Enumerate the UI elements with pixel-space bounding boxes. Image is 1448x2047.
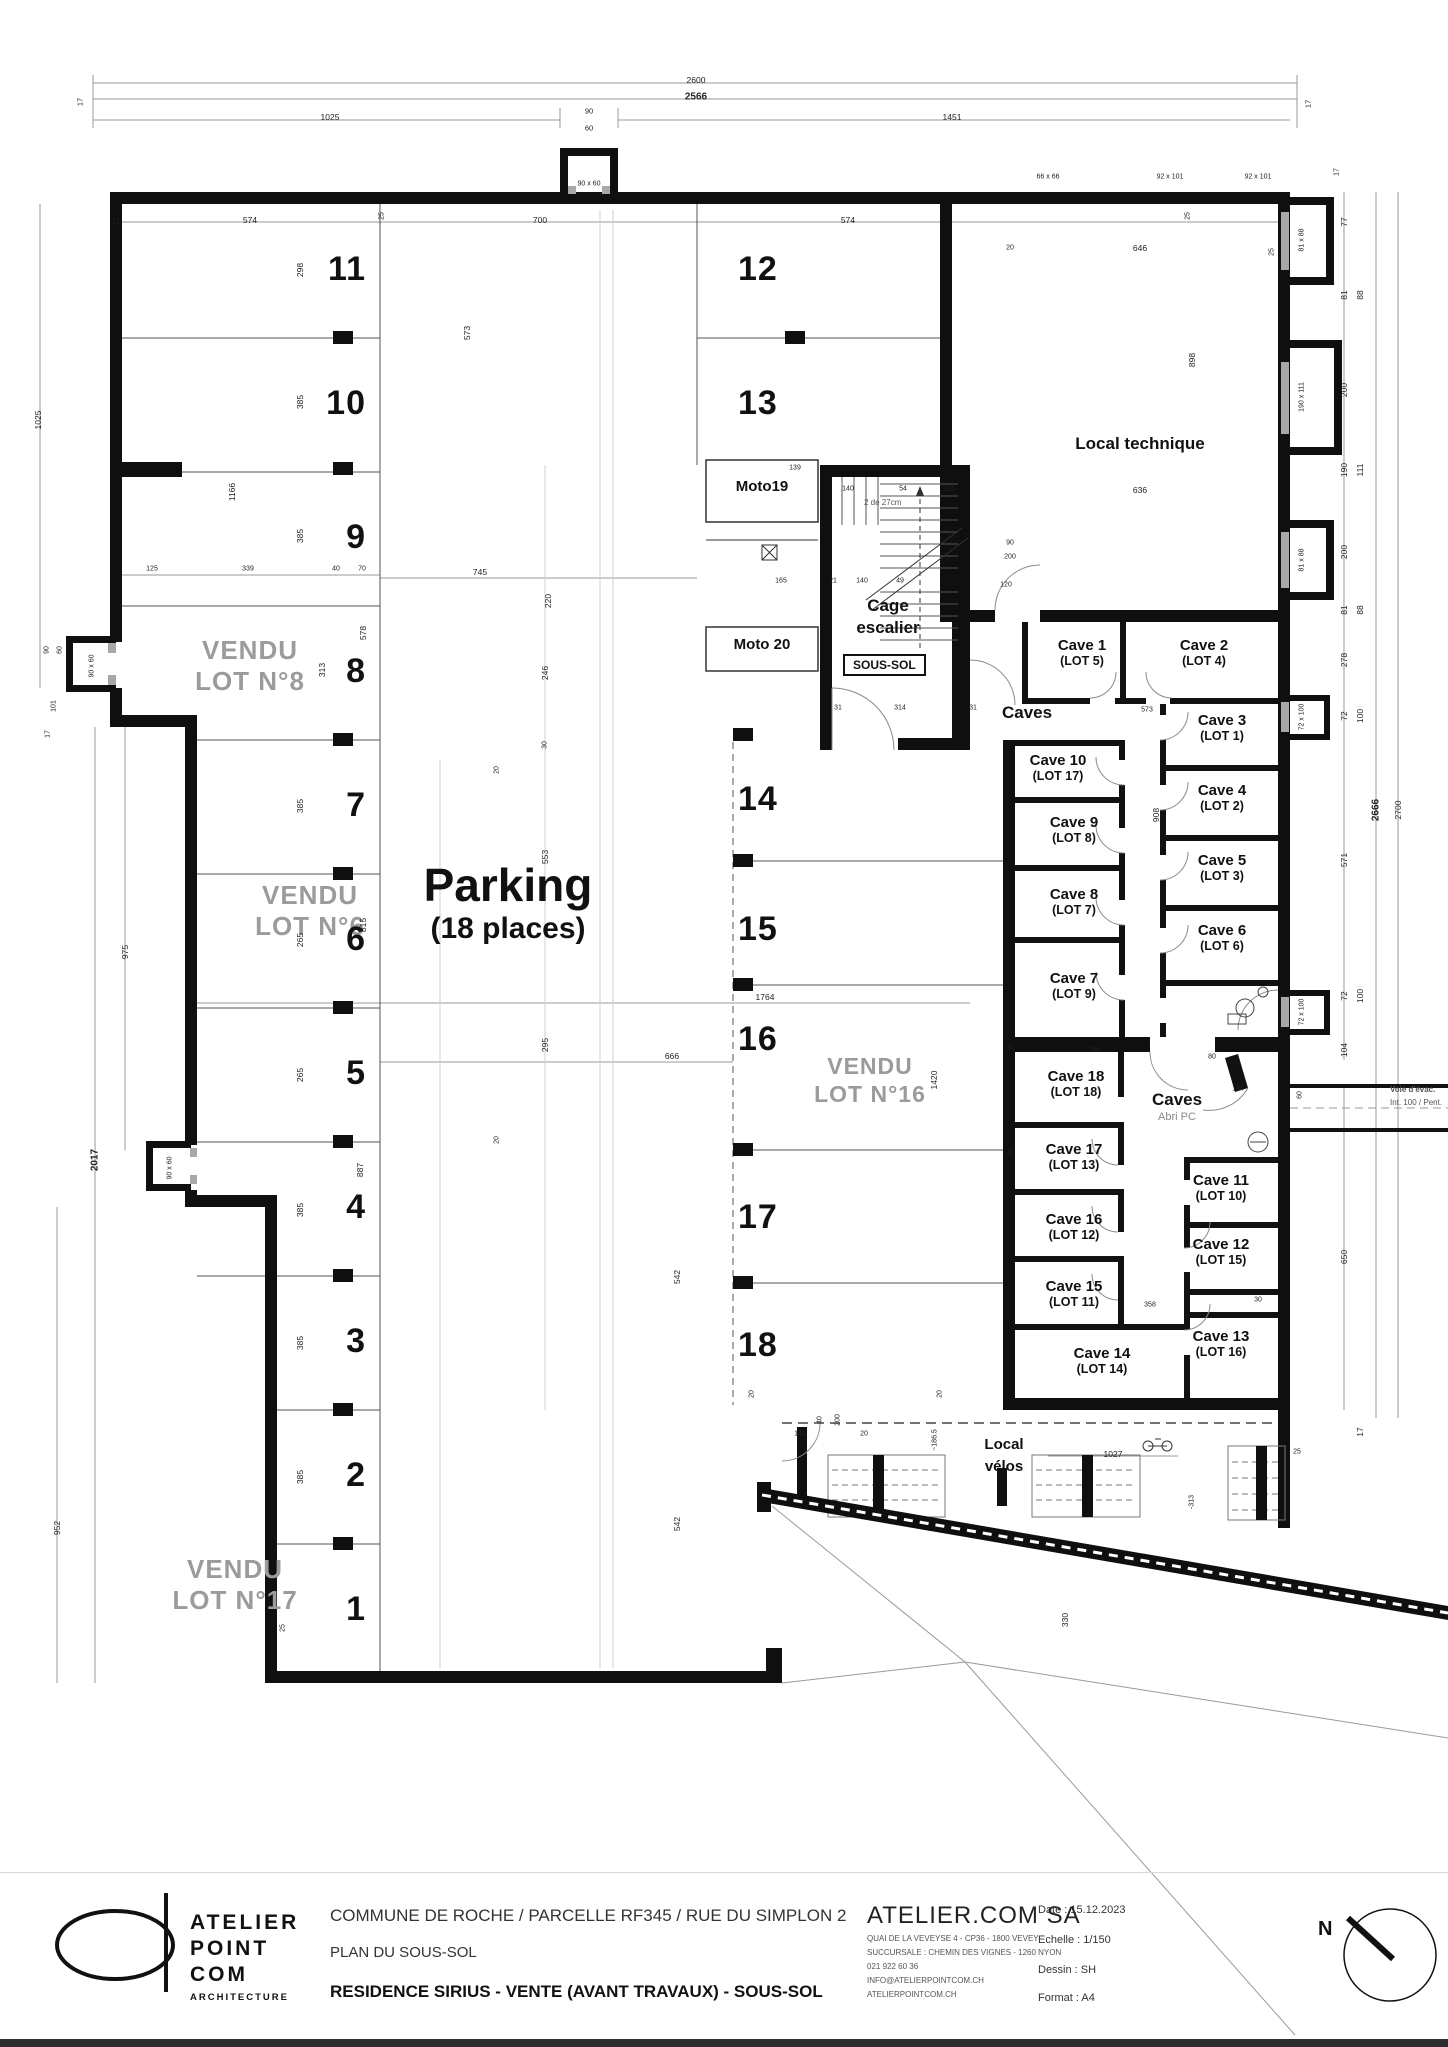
firm-web: ATELIERPOINTCOM.CH [867, 1988, 957, 2002]
sheet-edge [0, 2039, 1448, 2047]
room-cave-11: Cave 11(LOT 10) [1175, 1172, 1267, 1204]
dimension-label: 646 [1133, 243, 1147, 253]
dimension-label: 60 [585, 124, 593, 133]
dimension-label: 88 [1355, 290, 1365, 299]
abri-pc-label: Abri PC [1158, 1111, 1196, 1123]
dimension-label: 190 [1339, 463, 1349, 477]
meta-drawn: Dessin : SH [1038, 1964, 1096, 1976]
dimension-label: 330 [1060, 1613, 1070, 1627]
dimension-label: 278 [1339, 653, 1349, 667]
spot-13: 13 [738, 384, 778, 423]
firm-address-2: SUCCURSALE : CHEMIN DES VIGNES - 1260 NY… [867, 1946, 1061, 1960]
dimension-label: 898 [1187, 353, 1197, 367]
dimension-label: 92 x 101 [1245, 174, 1272, 181]
dimension-label: 553 [540, 850, 550, 864]
logo-word-1: ATELIER [190, 1910, 299, 1936]
dimension-label: 1166 [227, 483, 237, 501]
dimension-label: 666 [665, 1051, 679, 1061]
dimension-label: 314 [894, 705, 906, 712]
dimension-label: 385 [295, 395, 305, 409]
spot-2: 2 [306, 1456, 366, 1495]
spot-16: 16 [738, 1020, 778, 1059]
local-velos-line1: Local [958, 1436, 1050, 1453]
dimension-label: 144 [794, 1431, 806, 1438]
caves-lower-label: Caves [1152, 1090, 1202, 1110]
dimension-label: 1420 [929, 1071, 939, 1090]
dimension-label: 887 [355, 1163, 365, 1177]
dimension-label: 90 [585, 107, 593, 116]
dimension-label: 31 [834, 705, 842, 712]
dimension-label: 265 [295, 1068, 305, 1082]
dimension-label: 120 [942, 486, 954, 493]
dimension-label: 571 [1339, 853, 1349, 867]
dimension-label: 358 [1144, 1302, 1156, 1309]
spot-11: 11 [306, 250, 366, 289]
dimension-label: 700 [533, 215, 547, 225]
dimension-label: 574 [841, 215, 855, 225]
evac-line2: Int. 100 / Pent. [1390, 1098, 1442, 1107]
room-cave-8: Cave 8(LOT 7) [1028, 886, 1120, 918]
dimension-label: 30 [542, 741, 549, 749]
spot-5: 5 [306, 1054, 366, 1093]
dimension-label: 745 [473, 567, 487, 577]
dimension-label: 49 [896, 578, 904, 585]
dimension-label: 30 [1254, 1297, 1262, 1304]
dimension-label: 120 [1000, 582, 1012, 589]
dimension-label: 17 [1355, 1427, 1365, 1436]
dimension-label: 542 [672, 1270, 682, 1284]
dimension-label: 815 [358, 918, 368, 932]
room-cave-17: Cave 17(LOT 13) [1028, 1141, 1120, 1173]
moto20-label: Moto 20 [706, 636, 818, 653]
dimension-label: 54 [899, 486, 907, 493]
dimension-label: 578 [358, 626, 368, 640]
dimension-label: 17 [45, 730, 52, 738]
dimension-label: 20 [749, 1390, 756, 1398]
dimension-label: 139 [789, 465, 801, 472]
dimension-label: 975 [120, 945, 130, 959]
dimension-label: 20 [494, 766, 501, 774]
room-cave-3: Cave 3(LOT 1) [1176, 712, 1268, 744]
firm-address-1: QUAI DE LA VEVEYSE 4 - CP36 - 1800 VEVEY [867, 1932, 1039, 1946]
spot-8: 8 [306, 652, 366, 691]
dimension-label: 77 [1339, 217, 1349, 226]
dimension-label: 104 [1339, 1043, 1349, 1057]
moto19-label: Moto19 [706, 478, 818, 495]
firm-phone: 021 922 60 36 [867, 1960, 918, 1974]
dimension-label: 2566 [685, 92, 707, 103]
bike-icon [1143, 1439, 1172, 1451]
dimension-label: 125 [146, 566, 158, 573]
dimension-label: 72 x 100 [1299, 704, 1306, 731]
dimension-label: 72 [1339, 711, 1349, 720]
dimension-label: 298 [295, 263, 305, 277]
dimension-label: 1027 [1104, 1449, 1123, 1459]
dimension-label: 25 [280, 1624, 287, 1632]
dimension-label: 200 [1004, 554, 1016, 561]
dimension-label: 25 [1185, 212, 1192, 220]
dimension-label: 265 [295, 933, 305, 947]
dimension-label: 70 [358, 566, 366, 573]
room-cave-4: Cave 4(LOT 2) [1176, 782, 1268, 814]
dimension-label: 295 [540, 1038, 550, 1052]
dimension-label: 88 [1355, 605, 1365, 614]
dimension-label: 90 x 60 [89, 655, 96, 678]
dimension-label: 81 [1339, 605, 1349, 614]
dimension-label: 1025 [33, 411, 43, 430]
dimension-label: 200 [1339, 545, 1349, 559]
room-cave-12: Cave 12(LOT 15) [1175, 1236, 1267, 1268]
dimension-label: 1764 [756, 992, 775, 1002]
dimension-label: 650 [1339, 1250, 1349, 1264]
dimension-label: 21 [829, 578, 837, 585]
dimension-label: 574 [243, 215, 257, 225]
plan-name-line: PLAN DU SOUS-SOL [330, 1944, 477, 1961]
dimension-label: 25 [1293, 1449, 1301, 1456]
room-cave-9: Cave 9(LOT 8) [1028, 814, 1120, 846]
dimension-label: 80 [1208, 1054, 1216, 1061]
logo-mark [57, 1893, 173, 1992]
dimension-label: 111 [1355, 464, 1365, 477]
room-cage-escalier-line1: Cage [833, 596, 943, 616]
logo-word-2: POINT [190, 1936, 269, 1962]
dimension-label: 100 [1355, 709, 1365, 723]
dimension-label: 542 [672, 1517, 682, 1531]
dimension-label: 17 [1304, 100, 1313, 108]
dimension-label: 1451 [943, 112, 962, 122]
ramp [762, 1488, 1448, 2035]
dimension-label: 313 [317, 663, 327, 677]
spot-14: 14 [738, 780, 778, 819]
spot-4: 4 [306, 1188, 366, 1227]
dimension-label: 636 [1133, 485, 1147, 495]
spot-18: 18 [738, 1326, 778, 1365]
dimension-label: 31 [969, 705, 977, 712]
dimension-label: 40 [332, 566, 340, 573]
dimension-label: 385 [295, 529, 305, 543]
room-cave-15: Cave 15(LOT 11) [1028, 1278, 1120, 1310]
meta-format: Format : A4 [1038, 1992, 1095, 2004]
dimension-label: 72 [1339, 991, 1349, 1000]
title-block-divider [0, 1872, 1448, 1873]
spot-3: 3 [306, 1322, 366, 1361]
dimension-label: 573 [462, 326, 472, 340]
dimension-label: 20 [494, 1136, 501, 1144]
dimension-label: 40 [817, 1416, 824, 1424]
dimension-label: 385 [295, 1470, 305, 1484]
dimension-label: 90 x 60 [578, 181, 601, 188]
spot-15: 15 [738, 910, 778, 949]
dimension-label: 25 [379, 212, 386, 220]
dimension-label: 573 [1141, 707, 1153, 714]
room-local-technique: Local technique [1040, 434, 1240, 454]
room-cave-2: Cave 2(LOT 4) [1158, 637, 1250, 669]
room-cave-18: Cave 18(LOT 18) [1030, 1068, 1122, 1100]
dimension-label: 200 [835, 1414, 842, 1426]
dimension-label: 190 x 111 [1299, 382, 1306, 412]
room-cave-5: Cave 5(LOT 3) [1176, 852, 1268, 884]
local-velos-line2: vélos [958, 1458, 1050, 1475]
room-cave-10: Cave 10(LOT 17) [1012, 752, 1104, 784]
dimension-label: ~186.5 [932, 1429, 939, 1451]
sheet-title-line: RESIDENCE SIRIUS - VENTE (AVANT TRAVAUX)… [330, 1982, 823, 2002]
dimension-label: 385 [295, 1336, 305, 1350]
north-label: N [1318, 1918, 1332, 1941]
dimension-label: 81 x 88 [1299, 229, 1306, 252]
dimension-label: 92 x 101 [1157, 174, 1184, 181]
vendu-lot17: VENDULOT N°17 [150, 1554, 320, 1616]
spot-7: 7 [306, 786, 366, 825]
dimension-label: 90 [1006, 540, 1014, 547]
spot-17: 17 [738, 1198, 778, 1237]
room-cave-7: Cave 7(LOT 9) [1028, 970, 1120, 1002]
floor-plan-drawing [0, 0, 1448, 2047]
dimension-label: 60 [1297, 1091, 1304, 1099]
room-cave-1: Cave 1(LOT 5) [1036, 637, 1128, 669]
dimension-label: 2600 [687, 75, 706, 85]
stair-note: 2 de 27cm [864, 498, 901, 507]
dimension-label: 2700 [1393, 801, 1403, 820]
spot-9: 9 [306, 518, 366, 557]
logo-word-3: COM [190, 1962, 248, 1988]
dimension-label: 2666 [1371, 799, 1382, 821]
dimension-label: 17 [1334, 168, 1341, 176]
meta-date: Date : 15.12.2023 [1038, 1904, 1125, 1916]
dimension-label: 100 [1355, 989, 1365, 1003]
project-line: COMMUNE DE ROCHE / PARCELLE RF345 / RUE … [330, 1906, 846, 1926]
dimension-label: 30 [1009, 1148, 1016, 1156]
north-compass [1344, 1909, 1436, 2001]
dimension-label: 60 [57, 646, 64, 654]
room-cave-16: Cave 16(LOT 12) [1028, 1211, 1120, 1243]
sous-sol-tag: SOUS-SOL [843, 654, 926, 676]
logo-subtitle: ARCHITECTURE [190, 1992, 289, 2003]
dimension-label: 1025 [321, 112, 340, 122]
evac-line1: Voie d'évac. [1390, 1085, 1435, 1094]
window-shafts [1290, 197, 1342, 1035]
dimension-label: 385 [295, 1203, 305, 1217]
room-cage-escalier-line2: escalier [833, 618, 943, 638]
spot-1: 1 [306, 1590, 366, 1629]
dimension-label: 165 [775, 578, 787, 585]
spot-12: 12 [738, 250, 778, 289]
dimension-label: 17 [76, 98, 85, 106]
parking-title: Parking [378, 858, 638, 912]
dimension-label: 220 [543, 594, 553, 608]
parking-subtitle: (18 places) [378, 912, 638, 946]
dimension-label: 200 [1339, 383, 1349, 397]
evac-corridor [1228, 987, 1448, 1152]
spot-10: 10 [306, 384, 366, 423]
dimension-label: 20 [860, 1431, 868, 1438]
dimension-label: 72 x 100 [1299, 999, 1306, 1026]
caves-upper-label: Caves [1002, 703, 1052, 723]
dimension-label: 2017 [90, 1149, 101, 1171]
dimension-label: 140 [842, 486, 854, 493]
dimension-label: 66 x 66 [1037, 174, 1060, 181]
dimension-label: 20 [937, 1390, 944, 1398]
dimension-label: 952 [52, 1521, 62, 1535]
dimension-label: 81 [1339, 290, 1349, 299]
dimension-label: 140 [856, 578, 868, 585]
dimension-label: 17 [112, 219, 120, 226]
room-cave-6: Cave 6(LOT 6) [1176, 922, 1268, 954]
room-cave-13: Cave 13(LOT 16) [1175, 1328, 1267, 1360]
dimension-label: 90 [44, 646, 51, 654]
dimension-label: 101 [51, 700, 58, 712]
meta-scale: Echelle : 1/150 [1038, 1934, 1111, 1946]
dimension-label: 339 [242, 566, 254, 573]
dimension-label: 25 [1269, 248, 1276, 256]
dimension-label: 90 x 60 [167, 1157, 174, 1180]
dimension-label: 385 [295, 799, 305, 813]
dimension-label: 20 [1006, 245, 1014, 252]
dimension-label: 81 x 88 [1299, 549, 1306, 572]
spot-6: 6 [306, 920, 366, 959]
dimension-label: 294 [1089, 1047, 1101, 1054]
dimension-label: 184 [1232, 1086, 1244, 1093]
dimension-label: 30 [1006, 1045, 1014, 1052]
room-cave-14: Cave 14(LOT 14) [1056, 1345, 1148, 1377]
firm-email: INFO@ATELIERPOINTCOM.CH [867, 1974, 984, 1988]
dimension-label: 908 [1151, 808, 1161, 822]
dimension-label: -313 [1189, 1495, 1196, 1509]
dimension-label: 246 [540, 666, 550, 680]
